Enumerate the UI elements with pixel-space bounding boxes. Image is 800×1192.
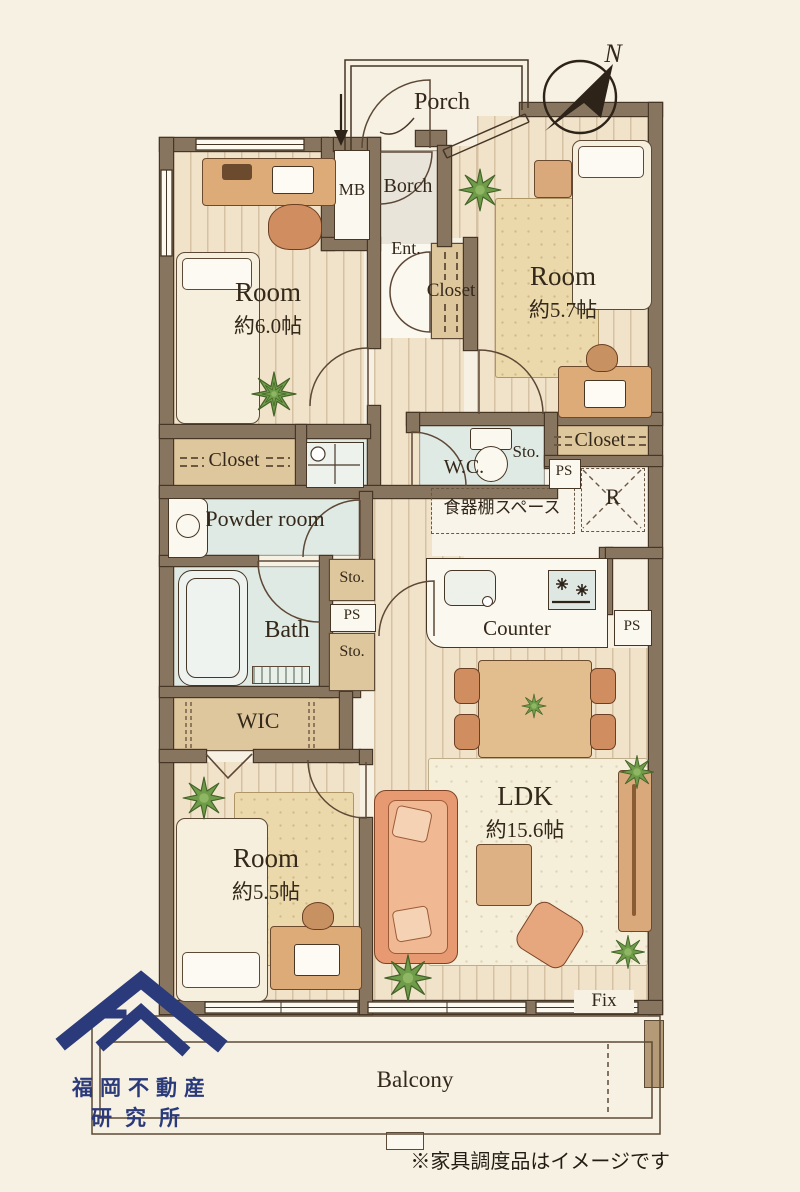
room-sw-size: 約5.5帖 [232, 880, 300, 904]
wall [254, 750, 360, 762]
powder-room-label: Powder room [180, 506, 350, 532]
desk-lamp [586, 344, 618, 372]
sto-upper-label: Sto. [330, 568, 374, 587]
dining-table [478, 660, 592, 758]
desk-chair-nw [268, 204, 322, 250]
wall [160, 138, 173, 1014]
tv [632, 784, 636, 916]
laptop [272, 166, 314, 194]
porch-leader [380, 118, 414, 134]
pillow-sw [182, 952, 260, 988]
counter-label: Counter [452, 616, 582, 641]
closet-entry-label: Closet [416, 280, 486, 303]
floor-plan: Porch N MB Borch Ent. Closet Room 約6.0帖 … [0, 0, 800, 1192]
balcony-label: Balcony [340, 1066, 490, 1094]
ldk-label: LDK 約15.6帖 [455, 780, 595, 845]
wall [368, 406, 380, 492]
wall [520, 103, 662, 116]
fix-label: Fix [574, 990, 634, 1013]
borch-floor [378, 150, 438, 246]
wic-label: WIC [216, 708, 300, 734]
bath-label: Bath [245, 616, 329, 645]
wall [416, 131, 446, 146]
room-nw-name: Room [235, 277, 301, 307]
ps-hall-label: PS [330, 606, 374, 624]
logo-line1: 福岡不動産 [50, 1072, 234, 1102]
dining-chair [590, 714, 616, 750]
room-ne-size: 約5.7帖 [529, 298, 597, 322]
wall [360, 750, 372, 764]
ps-wc-label: PS [549, 462, 579, 480]
dining-chair [454, 668, 480, 704]
wall [160, 138, 328, 151]
room-nw-label: Room 約6.0帖 [198, 276, 338, 341]
wc-label: W.C. [432, 455, 496, 479]
ps-kitchen-label: PS [615, 617, 649, 635]
pillow-ne [578, 146, 644, 178]
wall-art [534, 160, 572, 198]
porch-label: Porch [404, 88, 480, 117]
washing-machine [306, 442, 364, 488]
wall [606, 548, 662, 558]
faucet [482, 596, 493, 607]
footnote: ※家具調度品はイメージです [370, 1150, 670, 1174]
coffee-table [476, 844, 532, 906]
bathtub-inner [186, 578, 240, 678]
closet-ne-label: Closet [562, 428, 638, 452]
ldk-name: LDK [497, 781, 553, 811]
room-sw-label: Room 約5.5帖 [196, 842, 336, 907]
north-label: N [598, 38, 628, 69]
balcony-partition [644, 1020, 664, 1088]
borch-label: Borch [374, 174, 442, 198]
room-nw-size: 約6.0帖 [234, 314, 302, 338]
logo-line2: 研究所 [50, 1102, 234, 1132]
fridge-label: R [598, 484, 628, 510]
wall [360, 492, 372, 560]
room-ne-name: Room [530, 261, 596, 291]
ldk-size: 約15.6帖 [486, 818, 565, 842]
room-ne-label: Room 約5.7帖 [493, 260, 633, 325]
cupboard-space-label: 食器棚スペース [436, 498, 568, 518]
dining-chair [590, 668, 616, 704]
wall [160, 425, 370, 438]
ent-label: Ent. [382, 238, 430, 260]
laptop [294, 944, 340, 976]
closet-nw-label: Closet [174, 448, 294, 472]
room-sw-name: Room [233, 843, 299, 873]
shower-drain [252, 666, 310, 684]
wall [407, 413, 419, 432]
sto-wc-label: Sto. [502, 442, 550, 462]
wall [296, 425, 306, 486]
sofa-cushion [391, 905, 432, 943]
laptop [584, 380, 626, 408]
mb-label: MB [336, 180, 368, 200]
wall [160, 750, 206, 762]
dining-chair [454, 714, 480, 750]
sto-lower-label: Sto. [330, 642, 374, 661]
stove [548, 570, 596, 610]
balcony-drain [386, 1132, 424, 1150]
desk-lamp [222, 164, 252, 180]
